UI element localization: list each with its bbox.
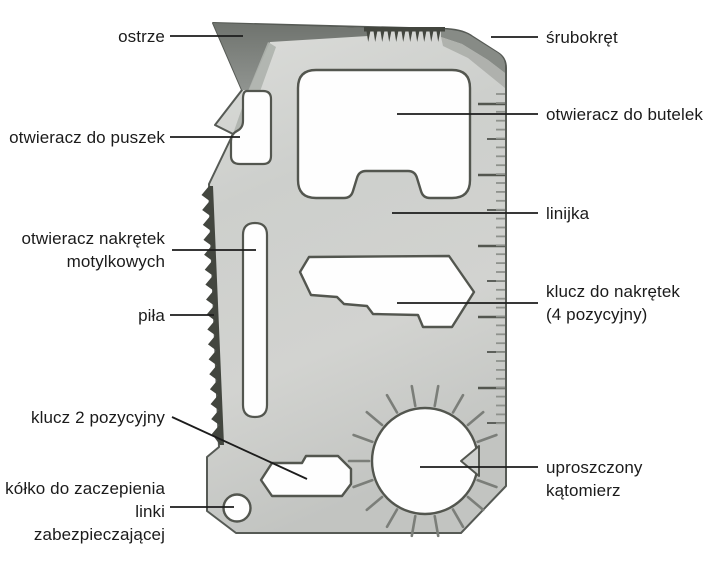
label-wrench-4: klucz do nakrętek (4 pozycyjny) xyxy=(546,280,680,326)
label-ostrze: ostrze xyxy=(118,25,165,48)
label-protractor: uproszczony kątomierz xyxy=(546,456,720,502)
wing-nut-opener-slot xyxy=(243,223,267,417)
product-diagram: ostrze otwieracz do puszek otwieracz nak… xyxy=(0,0,720,562)
label-can-opener: otwieracz do puszek xyxy=(9,126,165,149)
label-wing-nut-opener: otwieracz nakrętek motylkowych xyxy=(21,227,165,273)
label-bottle-opener: otwieracz do butelek xyxy=(546,103,703,126)
label-lanyard-hole: kółko do zaczepienia linki zabezpieczają… xyxy=(0,477,165,546)
label-saw: piła xyxy=(138,304,165,327)
label-screwdriver: śrubokręt xyxy=(546,26,618,49)
label-ruler: linijka xyxy=(546,202,589,225)
label-wrench-2: klucz 2 pozycyjny xyxy=(31,406,165,429)
wrench-2-position-cutout xyxy=(261,456,351,496)
lanyard-hole xyxy=(224,495,251,522)
